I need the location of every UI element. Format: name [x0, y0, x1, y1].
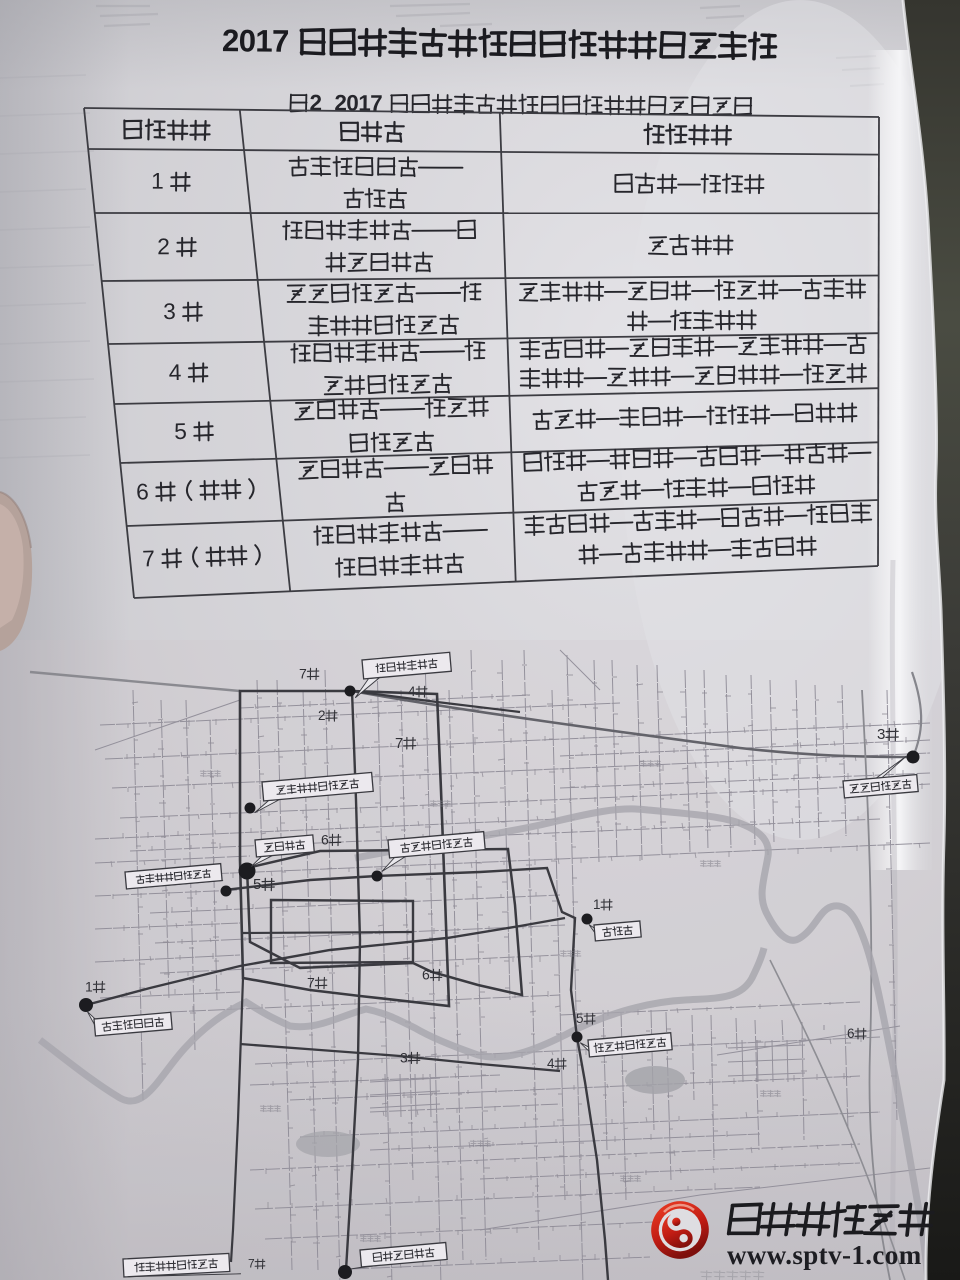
svg-text:4: 4 [408, 684, 416, 699]
svg-text:7: 7 [142, 545, 156, 571]
svg-text:4: 4 [169, 359, 182, 385]
svg-text:3: 3 [877, 726, 885, 743]
svg-text:3: 3 [163, 298, 176, 324]
svg-text:5: 5 [174, 418, 187, 444]
svg-text:7: 7 [272, 24, 290, 59]
svg-text:7: 7 [299, 665, 307, 681]
svg-text:1: 1 [85, 978, 93, 994]
svg-text:1: 1 [151, 168, 164, 194]
svg-text:3: 3 [400, 1049, 408, 1065]
svg-text:2: 2 [222, 23, 240, 58]
svg-text:1: 1 [255, 23, 273, 58]
svg-text:7: 7 [395, 736, 403, 752]
svg-text:6: 6 [321, 831, 329, 847]
svg-text:6: 6 [847, 1026, 855, 1041]
svg-text:5: 5 [576, 1011, 584, 1026]
svg-text:7: 7 [307, 974, 315, 990]
svg-text:0: 0 [239, 23, 257, 58]
svg-text:2: 2 [157, 233, 170, 259]
svg-text:www.sptv-1.com: www.sptv-1.com [727, 1240, 922, 1270]
svg-text:2: 2 [318, 708, 326, 723]
svg-text:4: 4 [547, 1056, 555, 1071]
svg-text:2: 2 [309, 90, 322, 115]
svg-text:1: 1 [593, 897, 601, 912]
svg-text:6: 6 [136, 478, 149, 504]
svg-text:7: 7 [248, 1257, 255, 1271]
svg-text:5: 5 [253, 876, 261, 893]
svg-text:6: 6 [422, 966, 430, 982]
